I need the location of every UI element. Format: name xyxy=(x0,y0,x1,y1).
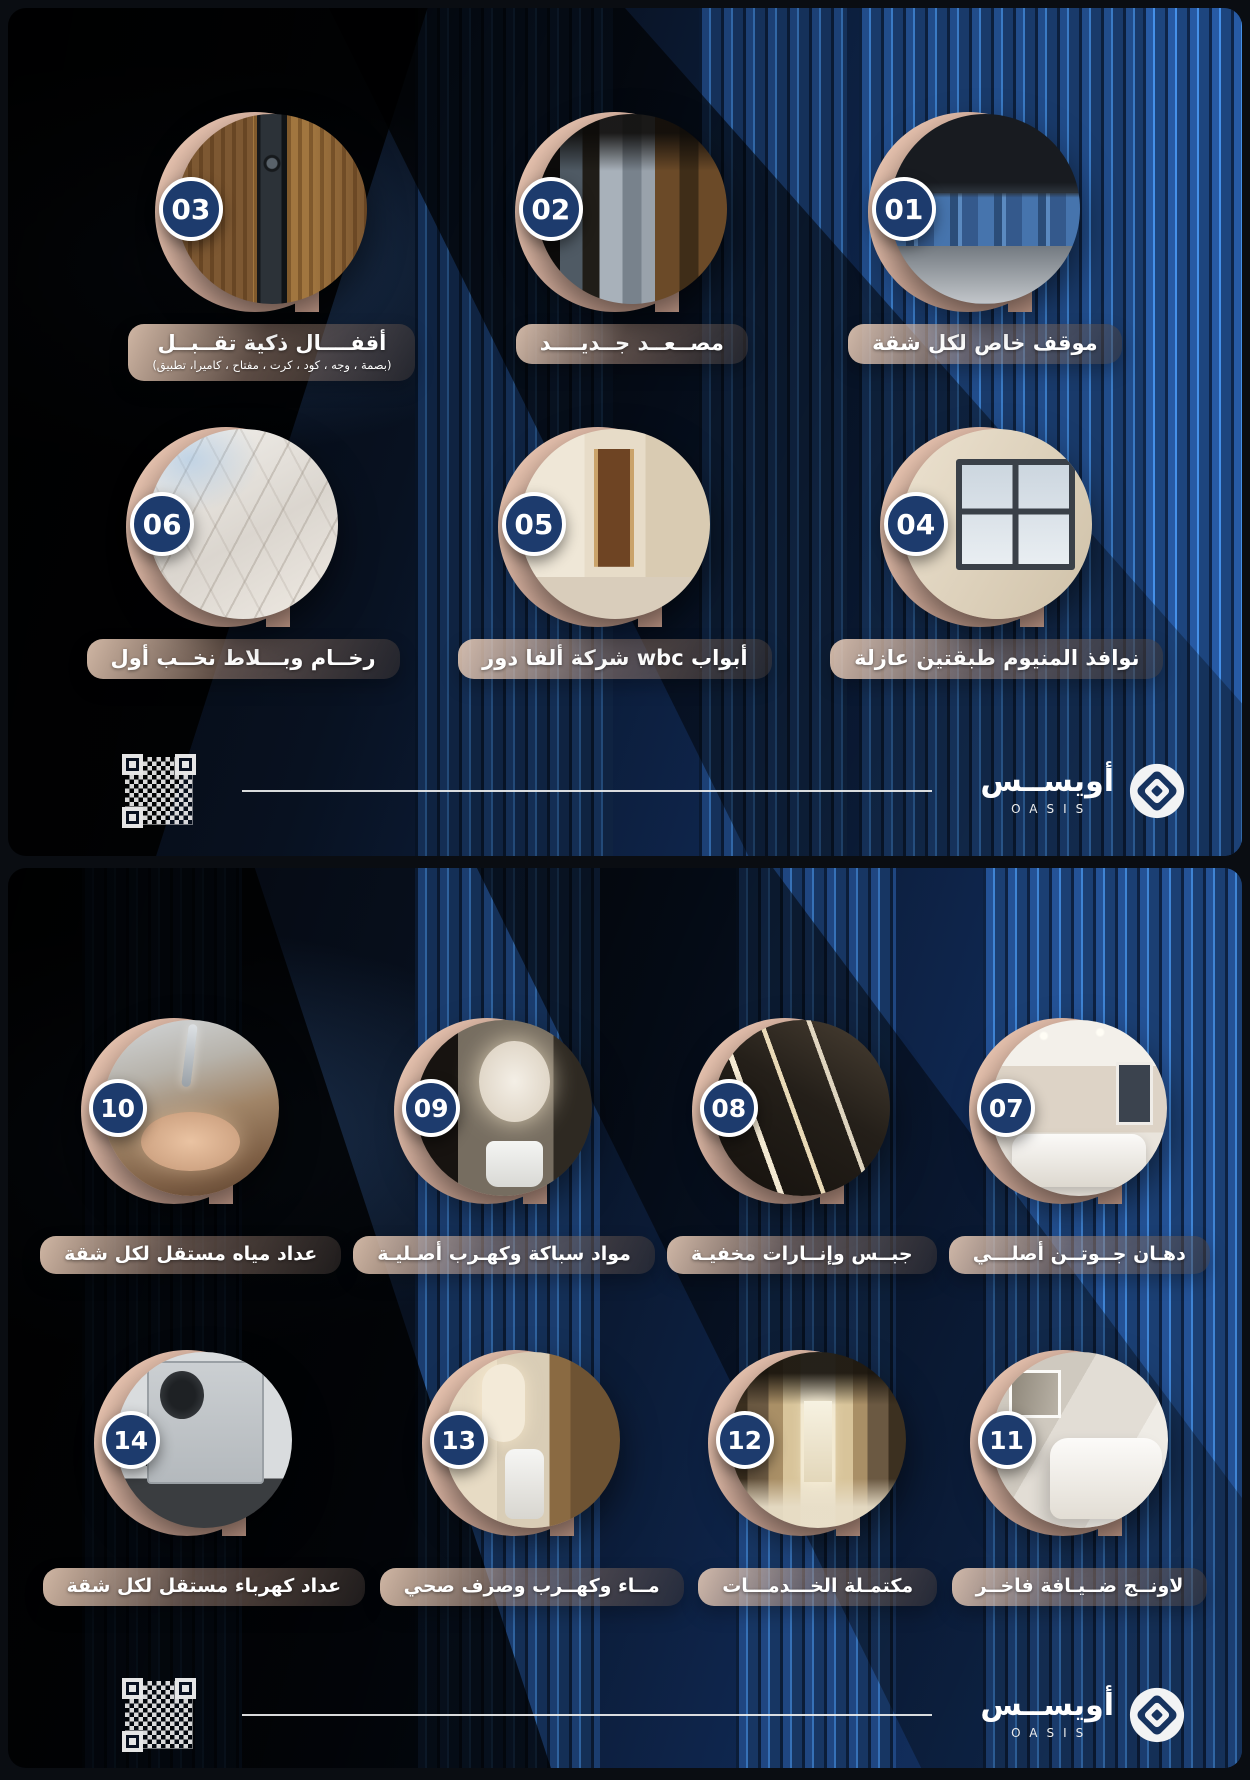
feature-row: 10 عداد مياه مستقل لكل شقة 09 مواد سباكة… xyxy=(8,1020,1242,1274)
feature-media: 06 xyxy=(148,429,338,619)
feature-item: 05 أبواب wbc شركة ألفا دور xyxy=(458,429,771,679)
feature-number: 01 xyxy=(884,193,923,226)
feature-media: 09 xyxy=(416,1020,592,1196)
feature-item: 09 مواد سباكة وكهـرب أصـليـة xyxy=(353,1020,655,1274)
feature-label: مــاء وكهــرب وصرف صحي xyxy=(404,1575,660,1597)
feature-number-badge: 06 xyxy=(130,492,194,556)
feature-number-badge: 02 xyxy=(519,177,583,241)
feature-item: 01 موقف خاص لكل شقة xyxy=(848,114,1121,364)
feature-number: 03 xyxy=(171,193,210,226)
feature-media: 02 xyxy=(537,114,727,304)
feature-number-badge: 04 xyxy=(884,492,948,556)
divider-line xyxy=(242,1714,932,1716)
feature-item: 12 مكتمـلة الخـــدمـــات xyxy=(698,1352,937,1606)
qr-finder-icon xyxy=(175,754,196,775)
qr-finder-icon xyxy=(122,1678,143,1699)
qr-finder-icon xyxy=(175,1678,196,1699)
feature-label: دهـان جــوتــن أصلـــي xyxy=(973,1243,1186,1265)
feature-number: 14 xyxy=(113,1426,148,1455)
diamond-in-circle-icon xyxy=(1128,1686,1186,1744)
oasis-logo: أويســس OASIS xyxy=(980,762,1186,820)
feature-label: موقف خاص لكل شقة xyxy=(872,331,1097,355)
feature-number-badge: 14 xyxy=(102,1411,160,1469)
feature-media: 04 xyxy=(902,429,1092,619)
feature-label-pill: مكتمـلة الخـــدمـــات xyxy=(698,1568,937,1606)
feature-label-pill: عداد كهرباء مستقل لكل شقة xyxy=(43,1568,366,1606)
feature-item: 04 نوافذ المنيوم طبقتين عازلة xyxy=(830,429,1163,679)
feature-item: 06 رخــام وبـــلاط نخــب أول xyxy=(87,429,400,679)
brand-name-english: OASIS xyxy=(989,1726,1114,1740)
feature-label-pill: عداد مياه مستقل لكل شقة xyxy=(40,1236,341,1274)
feature-label: أقفــــال ذكية تقــبــل xyxy=(152,331,391,355)
feature-number-badge: 13 xyxy=(430,1411,488,1469)
feature-number-badge: 10 xyxy=(89,1079,147,1137)
feature-label: رخــام وبـــلاط نخــب أول xyxy=(111,646,376,670)
feature-number-badge: 08 xyxy=(700,1079,758,1137)
panel-footer: أويســس OASIS xyxy=(8,752,1242,856)
feature-label-pill: مصــعــد جــديــــد xyxy=(516,324,748,364)
feature-row: 06 رخــام وبـــلاط نخــب أول 05 أبواب wb… xyxy=(8,429,1242,679)
feature-media: 12 xyxy=(730,1352,906,1528)
feature-item: 13 مــاء وكهــرب وصرف صحي xyxy=(380,1352,684,1606)
feature-item: 03 أقفــــال ذكية تقــبــل (بصمة ، وجه ،… xyxy=(128,114,415,381)
feature-item: 07 دهـان جــوتــن أصلـــي xyxy=(949,1020,1210,1274)
feature-number-badge: 11 xyxy=(978,1411,1036,1469)
oasis-logo-text: أويســس OASIS xyxy=(980,1690,1114,1741)
brand-name-arabic: أويســس xyxy=(980,1690,1114,1722)
oasis-logo: أويســس OASIS xyxy=(980,1686,1186,1744)
feature-item: 11 لاونــج ضــيـافة فاخــر xyxy=(952,1352,1208,1606)
feature-rows: 10 عداد مياه مستقل لكل شقة 09 مواد سباكة… xyxy=(8,868,1242,1606)
feature-number: 13 xyxy=(441,1426,476,1455)
feature-label-pill: مواد سباكة وكهـرب أصـليـة xyxy=(353,1236,655,1274)
feature-rows: 03 أقفــــال ذكية تقــبــل (بصمة ، وجه ،… xyxy=(8,8,1242,679)
panel: 03 أقفــــال ذكية تقــبــل (بصمة ، وجه ،… xyxy=(8,8,1242,856)
feature-number: 09 xyxy=(414,1094,449,1123)
oasis-logo-text: أويســس OASIS xyxy=(980,766,1114,817)
diamond-in-circle-icon xyxy=(1128,762,1186,820)
qr-finder-icon xyxy=(122,807,143,828)
poster: 03 أقفــــال ذكية تقــبــل (بصمة ، وجه ،… xyxy=(0,0,1250,1780)
feature-item: 14 عداد كهرباء مستقل لكل شقة xyxy=(43,1352,366,1606)
feature-item: 08 جبــس وإنــارات مخفيـة xyxy=(667,1020,937,1274)
feature-media: 11 xyxy=(992,1352,1168,1528)
feature-label: جبــس وإنــارات مخفيـة xyxy=(691,1243,913,1265)
feature-media: 14 xyxy=(116,1352,292,1528)
feature-number-badge: 07 xyxy=(977,1079,1035,1137)
feature-label: أبواب wbc شركة ألفا دور xyxy=(482,646,747,670)
feature-number: 06 xyxy=(143,508,182,541)
feature-label: عداد مياه مستقل لكل شقة xyxy=(64,1243,317,1265)
feature-media: 01 xyxy=(890,114,1080,304)
feature-number-badge: 01 xyxy=(872,177,936,241)
feature-number: 12 xyxy=(727,1426,762,1455)
feature-media: 13 xyxy=(444,1352,620,1528)
feature-item: 10 عداد مياه مستقل لكل شقة xyxy=(40,1020,341,1274)
feature-label-pill: جبــس وإنــارات مخفيـة xyxy=(667,1236,937,1274)
feature-row: 03 أقفــــال ذكية تقــبــل (بصمة ، وجه ،… xyxy=(8,114,1242,381)
feature-label-pill: أبواب wbc شركة ألفا دور xyxy=(458,639,771,679)
feature-media: 08 xyxy=(714,1020,890,1196)
feature-label-pill: لاونــج ضــيـافة فاخــر xyxy=(952,1568,1208,1606)
feature-label: لاونــج ضــيـافة فاخــر xyxy=(976,1575,1184,1597)
feature-number-badge: 03 xyxy=(159,177,223,241)
feature-number-badge: 05 xyxy=(502,492,566,556)
feature-media: 07 xyxy=(991,1020,1167,1196)
feature-label-pill: دهـان جــوتــن أصلـــي xyxy=(949,1236,1210,1274)
feature-number: 11 xyxy=(989,1426,1024,1455)
feature-media: 10 xyxy=(103,1020,279,1196)
feature-number: 10 xyxy=(100,1094,135,1123)
divider-line xyxy=(242,790,932,792)
feature-label-pill: أقفــــال ذكية تقــبــل (بصمة ، وجه ، كو… xyxy=(128,324,415,381)
feature-number: 05 xyxy=(514,508,553,541)
feature-label: عداد كهرباء مستقل لكل شقة xyxy=(67,1575,342,1597)
feature-row: 14 عداد كهرباء مستقل لكل شقة 13 مــاء وك… xyxy=(8,1352,1242,1606)
feature-media: 03 xyxy=(177,114,367,304)
feature-label: نوافذ المنيوم طبقتين عازلة xyxy=(854,646,1139,670)
feature-label: مكتمـلة الخـــدمـــات xyxy=(722,1575,913,1597)
qr-code xyxy=(120,1676,198,1754)
panel-content: 03 أقفــــال ذكية تقــبــل (بصمة ، وجه ،… xyxy=(8,8,1242,856)
panel: 10 عداد مياه مستقل لكل شقة 09 مواد سباكة… xyxy=(8,868,1242,1768)
feature-number: 02 xyxy=(531,193,570,226)
feature-label-pill: نوافذ المنيوم طبقتين عازلة xyxy=(830,639,1163,679)
feature-number: 08 xyxy=(711,1094,746,1123)
feature-label-pill: مــاء وكهــرب وصرف صحي xyxy=(380,1568,684,1606)
feature-number: 04 xyxy=(896,508,935,541)
qr-finder-icon xyxy=(122,1731,143,1752)
feature-number-badge: 09 xyxy=(402,1079,460,1137)
feature-label: مصــعــد جــديــــد xyxy=(540,331,724,355)
feature-number: 07 xyxy=(989,1094,1024,1123)
feature-number-badge: 12 xyxy=(716,1411,774,1469)
panel-content: 10 عداد مياه مستقل لكل شقة 09 مواد سباكة… xyxy=(8,868,1242,1768)
qr-finder-icon xyxy=(122,754,143,775)
panel-footer: أويســس OASIS xyxy=(8,1676,1242,1768)
feature-label-pill: موقف خاص لكل شقة xyxy=(848,324,1121,364)
qr-code xyxy=(120,752,198,830)
feature-item: 02 مصــعــد جــديــــد xyxy=(516,114,748,364)
feature-media: 05 xyxy=(520,429,710,619)
feature-label-pill: رخــام وبـــلاط نخــب أول xyxy=(87,639,400,679)
feature-label: مواد سباكة وكهـرب أصـليـة xyxy=(377,1243,631,1265)
brand-name-arabic: أويســس xyxy=(980,766,1114,798)
feature-sublabel: (بصمة ، وجه ، كود ، كرت ، مفتاح ، كاميرا… xyxy=(152,358,391,372)
brand-name-english: OASIS xyxy=(989,802,1114,816)
